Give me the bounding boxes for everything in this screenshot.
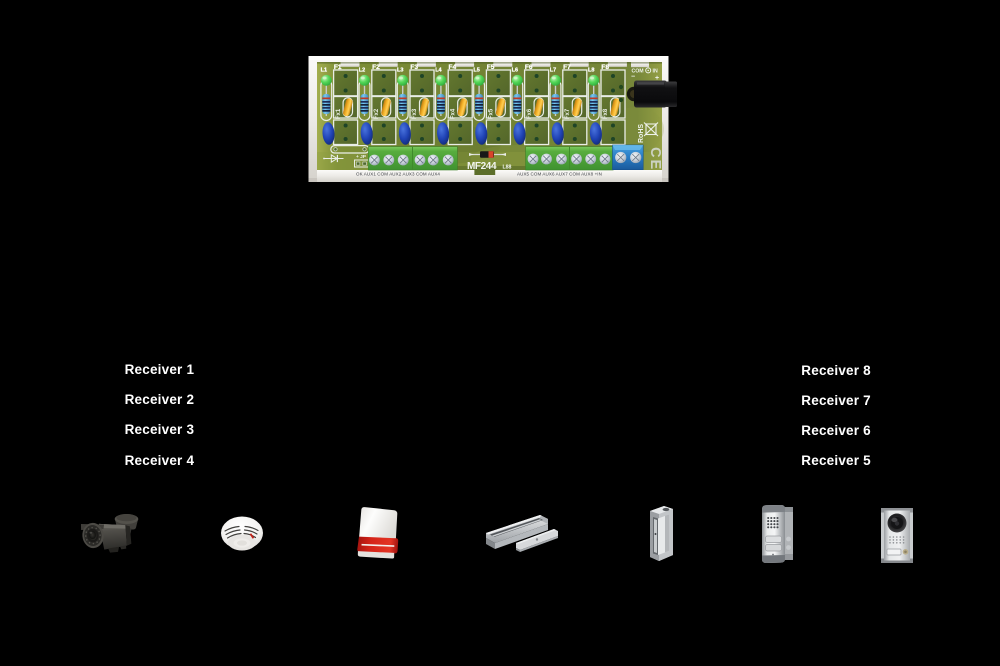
svg-text:MF244: MF244 [467, 161, 497, 172]
svg-text:Fx8: Fx8 [603, 108, 609, 119]
svg-text:L4: L4 [435, 68, 442, 74]
svg-text:RoHS: RoHS [638, 124, 645, 143]
svg-text:Fx6: Fx6 [527, 108, 533, 119]
svg-text:L8: L8 [588, 68, 594, 74]
svg-text:Fx1: Fx1 [336, 108, 342, 119]
svg-text:+ JP: + JP [356, 154, 367, 160]
svg-text:Fx5: Fx5 [489, 108, 495, 119]
svg-text:L1: L1 [321, 68, 327, 74]
svg-text:Fx4: Fx4 [450, 108, 456, 119]
svg-text:F3: F3 [410, 64, 418, 71]
svg-text:L88: L88 [503, 165, 512, 171]
svg-text:L7: L7 [550, 68, 556, 74]
svg-text:L5: L5 [473, 68, 479, 74]
svg-text:F8: F8 [601, 64, 609, 71]
svg-text:L6: L6 [512, 68, 518, 74]
svg-text:F6: F6 [525, 64, 533, 71]
svg-text:Fx7: Fx7 [565, 108, 571, 119]
svg-text:OK AUX1 COM AUX2 AUX3 COM AUX: OK AUX1 COM AUX2 AUX3 COM AUX4 [356, 171, 440, 176]
svg-text:F2: F2 [372, 64, 380, 71]
svg-text:CE: CE [647, 147, 663, 171]
svg-text:IN: IN [653, 68, 658, 74]
svg-text:F4: F4 [449, 64, 457, 71]
svg-text:F7: F7 [563, 64, 571, 71]
svg-text:L3: L3 [397, 68, 403, 74]
svg-text:L2: L2 [359, 68, 365, 74]
svg-text:F5: F5 [487, 64, 495, 71]
svg-text:Fx2: Fx2 [374, 108, 380, 119]
svg-text:F1: F1 [334, 64, 342, 71]
svg-text:AUX5 COM AUX6 AUX7 COM AUX8 +I: AUX5 COM AUX6 AUX7 COM AUX8 +IN [517, 171, 602, 176]
svg-text:Fx3: Fx3 [412, 108, 418, 119]
svg-text:−: − [631, 74, 635, 81]
